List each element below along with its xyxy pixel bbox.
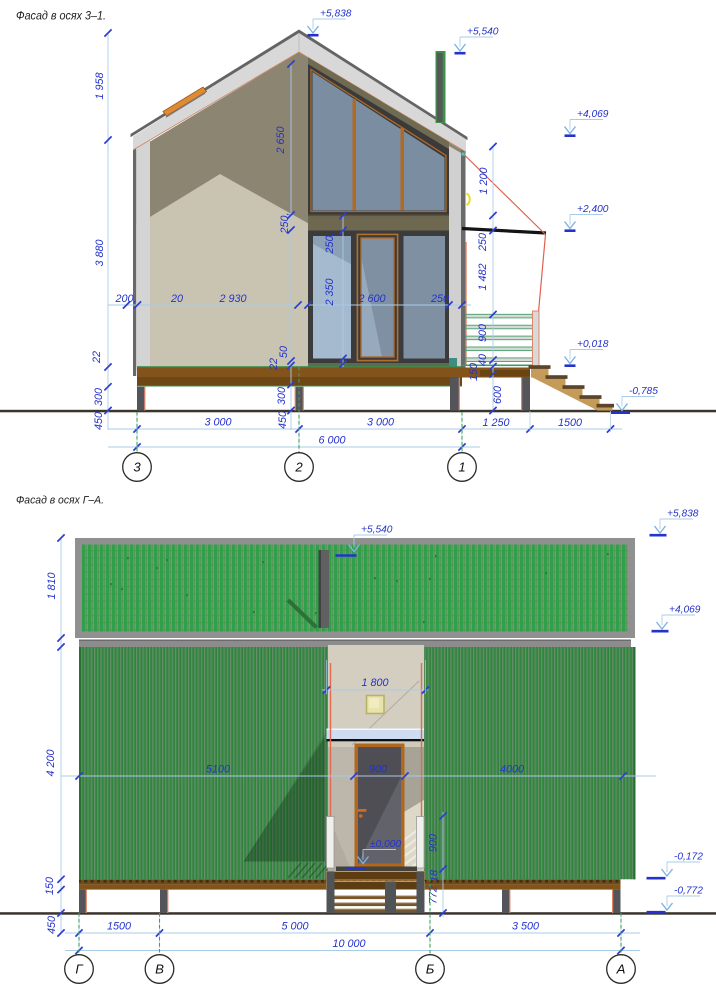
svg-text:1 810: 1 810	[46, 572, 58, 599]
svg-text:+0,018: +0,018	[577, 339, 609, 350]
svg-text:300: 300	[276, 387, 288, 405]
svg-text:1 200: 1 200	[478, 167, 490, 194]
svg-text:250,: 250,	[324, 232, 336, 254]
svg-text:450: 450	[46, 916, 58, 934]
svg-text:Б: Б	[426, 962, 435, 977]
svg-text:+4,069: +4,069	[577, 109, 609, 120]
svg-text:1 958: 1 958	[94, 72, 106, 99]
svg-text:2 930: 2 930	[218, 293, 246, 305]
svg-text:А: А	[616, 962, 626, 977]
svg-text:1 250: 1 250	[482, 417, 509, 429]
svg-text:450: 450	[277, 411, 289, 429]
svg-text:150: 150	[44, 877, 56, 895]
svg-text:900: 900	[477, 324, 489, 342]
svg-text:250,: 250,	[279, 212, 291, 234]
svg-text:50: 50	[278, 346, 290, 358]
svg-text:2 600: 2 600	[357, 293, 385, 305]
svg-text:+5,838: +5,838	[667, 509, 699, 520]
svg-text:±0,000: ±0,000	[370, 839, 401, 850]
svg-text:1 482: 1 482	[477, 263, 489, 290]
svg-text:1: 1	[458, 460, 465, 475]
svg-text:20: 20	[170, 293, 183, 305]
svg-text:772: 772	[428, 886, 440, 904]
svg-text:2: 2	[294, 460, 303, 475]
svg-text:150: 150	[468, 363, 480, 381]
svg-text:10 000: 10 000	[332, 938, 365, 950]
svg-text:В: В	[155, 962, 164, 977]
svg-text:3 500: 3 500	[512, 921, 539, 933]
svg-text:300: 300	[93, 388, 105, 406]
svg-text:450: 450	[93, 412, 105, 430]
svg-text:1 800: 1 800	[361, 677, 388, 689]
svg-text:250: 250	[477, 233, 489, 252]
svg-text:Фасад в осях 3–1.: Фасад в осях 3–1.	[16, 11, 106, 23]
svg-text:900: 900	[428, 834, 440, 852]
svg-text:3 880: 3 880	[94, 239, 106, 266]
svg-text:-0,172: -0,172	[674, 852, 703, 863]
svg-text:1500: 1500	[107, 921, 131, 933]
svg-text:4000: 4000	[500, 764, 524, 776]
svg-text:1500: 1500	[558, 417, 582, 429]
svg-text:+5,540: +5,540	[361, 525, 393, 536]
svg-text:2 350: 2 350	[324, 278, 336, 306]
svg-text:3: 3	[133, 460, 141, 475]
svg-text:4 200: 4 200	[45, 749, 57, 776]
svg-text:5100: 5100	[206, 764, 230, 776]
svg-text:Г: Г	[75, 962, 83, 977]
svg-text:22: 22	[268, 358, 280, 371]
svg-text:6 000: 6 000	[318, 435, 345, 447]
svg-text:22: 22	[91, 351, 103, 364]
svg-text:3 000: 3 000	[367, 417, 394, 429]
svg-text:600: 600	[492, 386, 504, 404]
svg-text:+4,069: +4,069	[669, 605, 701, 616]
svg-text:+5,540: +5,540	[467, 27, 499, 38]
svg-text:250: 250	[430, 293, 449, 305]
svg-text:Фасад в осях Г–А.: Фасад в осях Г–А.	[16, 495, 104, 507]
svg-text:3 000: 3 000	[204, 417, 231, 429]
svg-text:-0,772: -0,772	[674, 886, 703, 897]
svg-text:+2,400: +2,400	[577, 204, 609, 215]
svg-text:900: 900	[369, 764, 387, 776]
svg-text:5 000: 5 000	[281, 921, 308, 933]
svg-text:200,: 200,	[114, 293, 136, 305]
svg-text:+5,838: +5,838	[320, 9, 352, 20]
svg-text:2 650: 2 650	[275, 126, 287, 154]
svg-text:-0,785: -0,785	[629, 386, 658, 397]
